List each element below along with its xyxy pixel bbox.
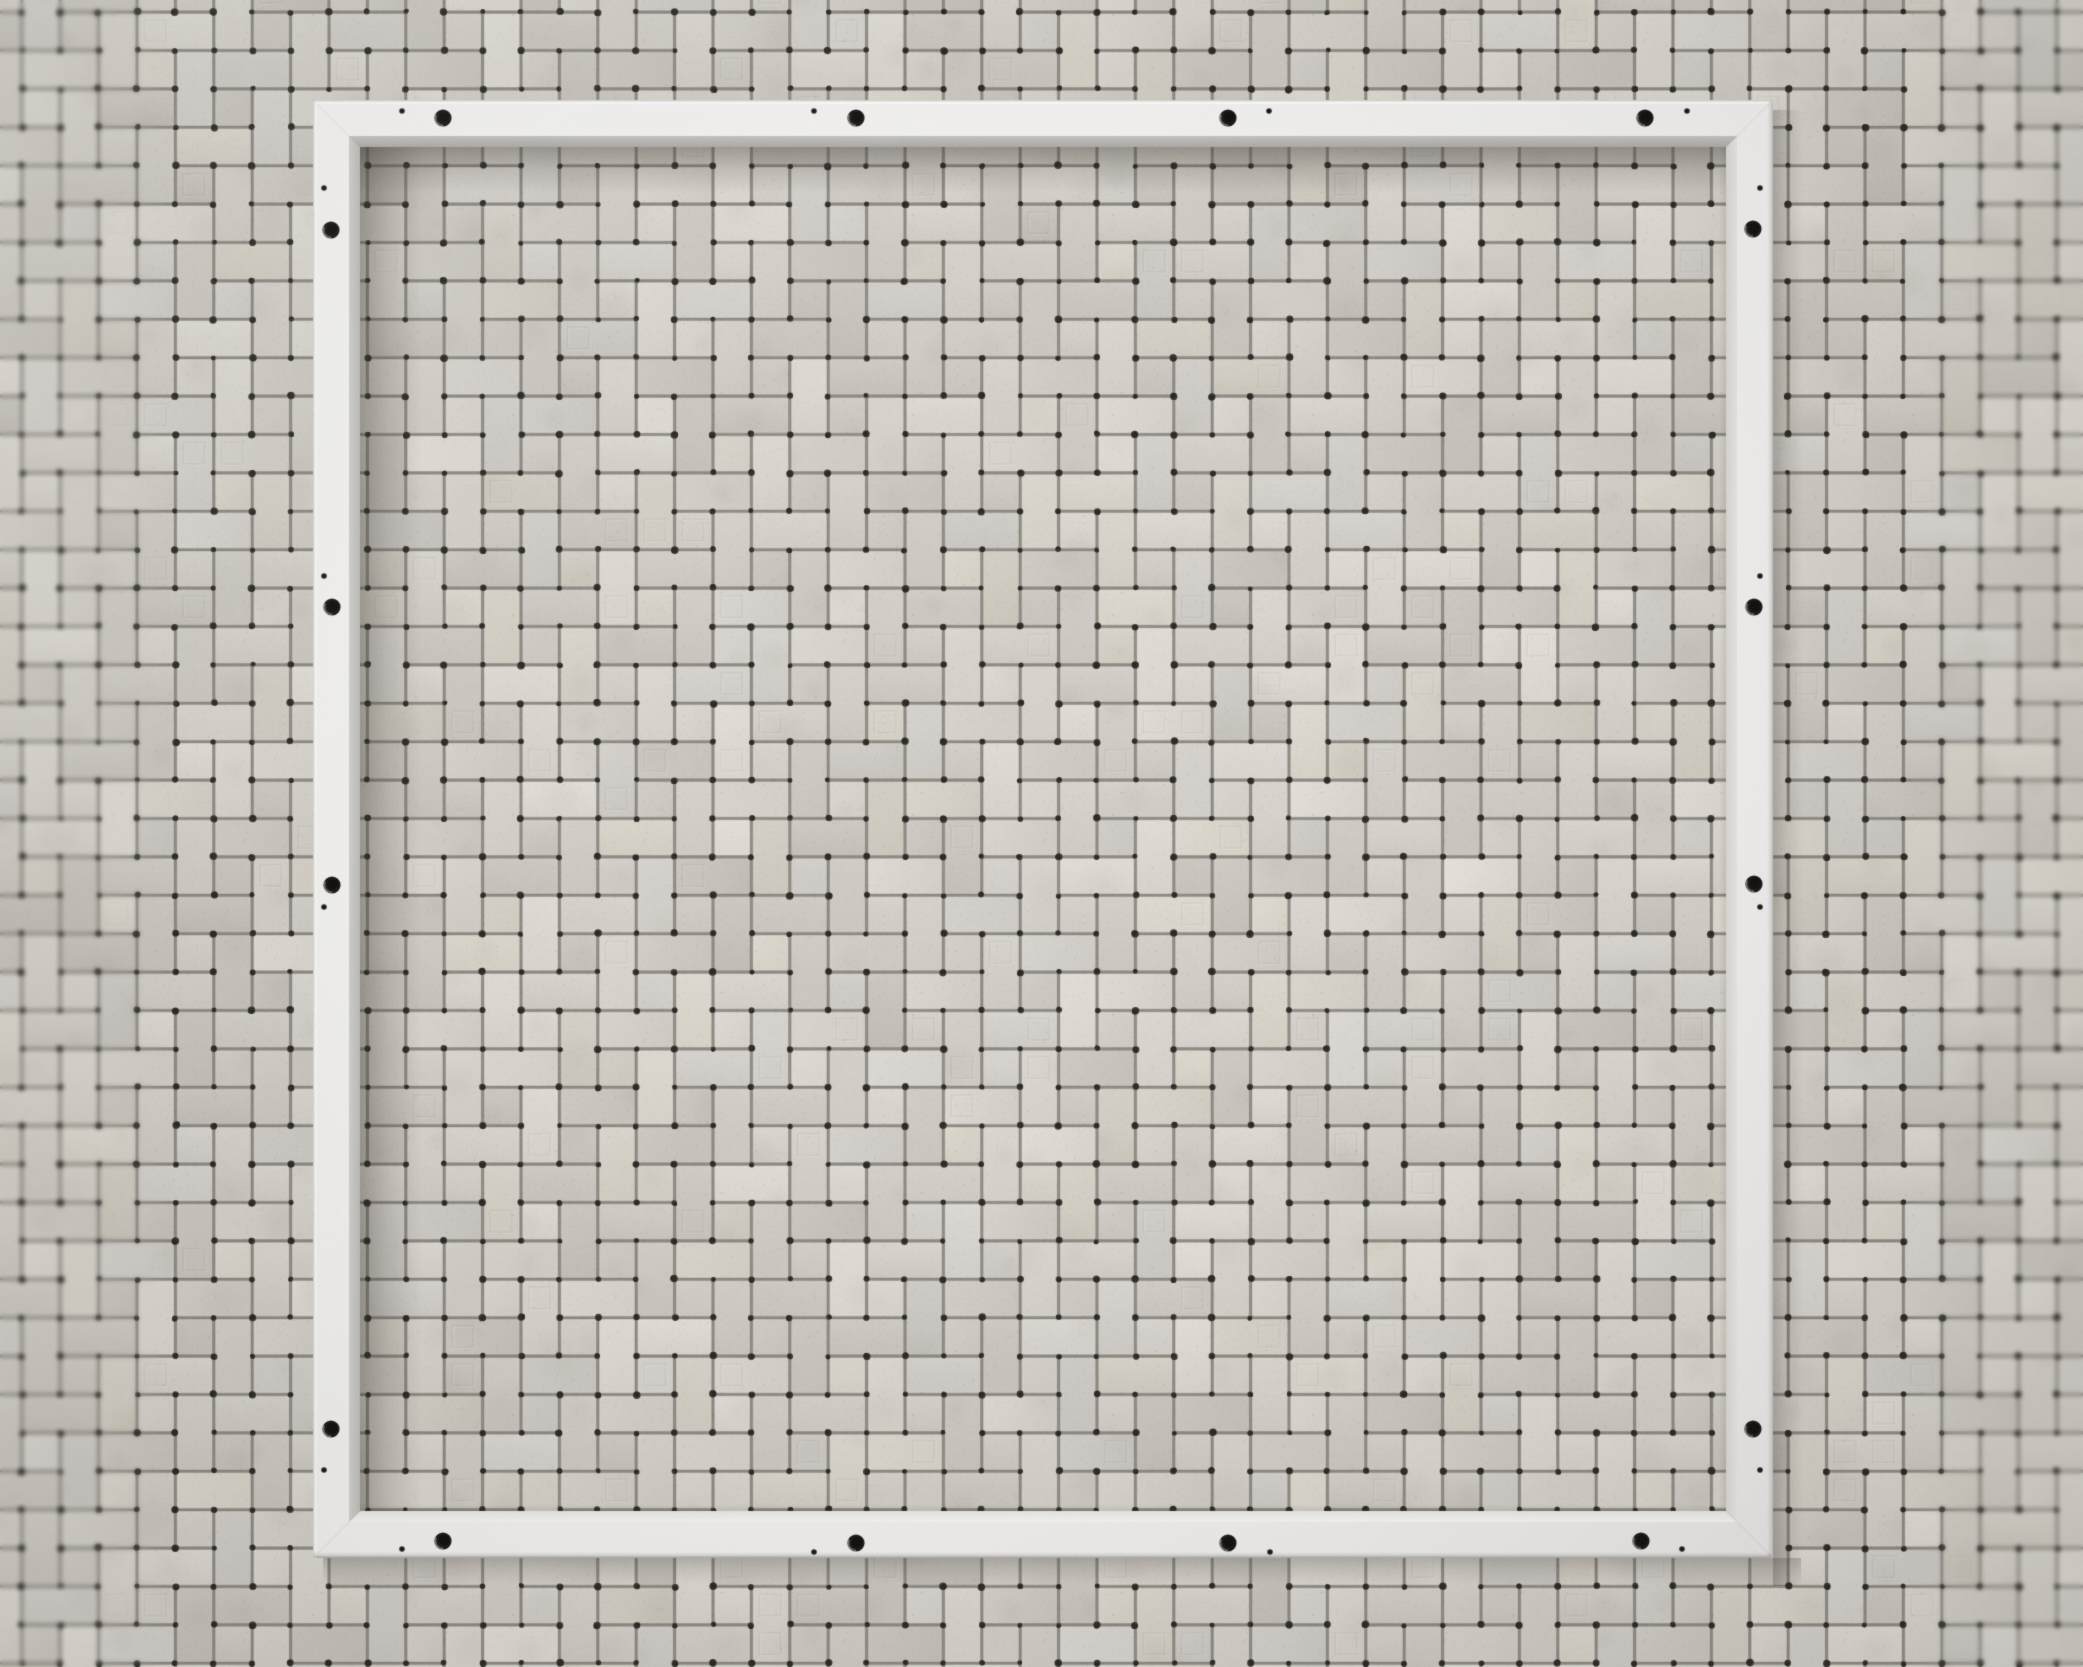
- product-photo: [0, 0, 2083, 1667]
- tile-wall-and-frame-photo: [0, 0, 2083, 1667]
